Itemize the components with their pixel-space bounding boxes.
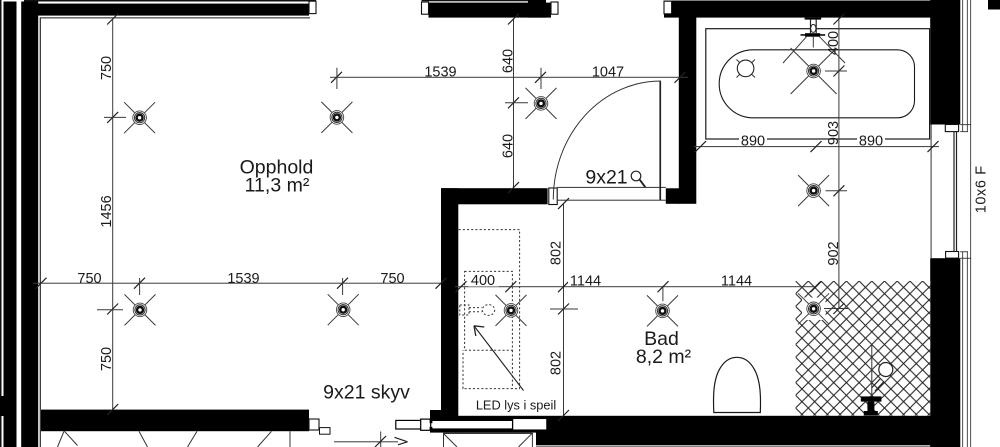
svg-text:9x21: 9x21 xyxy=(585,167,627,189)
svg-text:750: 750 xyxy=(380,271,404,287)
svg-text:802: 802 xyxy=(549,241,565,265)
svg-text:890: 890 xyxy=(859,134,883,150)
svg-text:750: 750 xyxy=(99,56,115,80)
svg-text:10x6 F: 10x6 F xyxy=(974,165,990,213)
svg-text:1047: 1047 xyxy=(592,65,624,81)
svg-text:903: 903 xyxy=(826,121,842,145)
svg-text:750: 750 xyxy=(99,347,115,371)
svg-text:1144: 1144 xyxy=(570,274,601,290)
svg-text:8,2 m²: 8,2 m² xyxy=(636,346,692,368)
svg-text:640: 640 xyxy=(500,49,516,73)
svg-text:9x21 skyv: 9x21 skyv xyxy=(323,382,410,404)
svg-text:LED lys i speil: LED lys i speil xyxy=(476,397,556,412)
svg-text:400: 400 xyxy=(471,273,495,289)
svg-text:750: 750 xyxy=(77,271,101,287)
svg-text:400: 400 xyxy=(826,31,842,55)
svg-text:802: 802 xyxy=(549,351,565,375)
svg-text:890: 890 xyxy=(741,134,765,150)
svg-text:1456: 1456 xyxy=(99,195,115,227)
svg-text:1144: 1144 xyxy=(721,274,752,290)
svg-text:11,3 m²: 11,3 m² xyxy=(245,174,310,196)
svg-text:1539: 1539 xyxy=(227,271,259,287)
svg-text:902: 902 xyxy=(826,241,842,265)
svg-text:1539: 1539 xyxy=(424,65,456,81)
svg-text:640: 640 xyxy=(500,134,516,158)
